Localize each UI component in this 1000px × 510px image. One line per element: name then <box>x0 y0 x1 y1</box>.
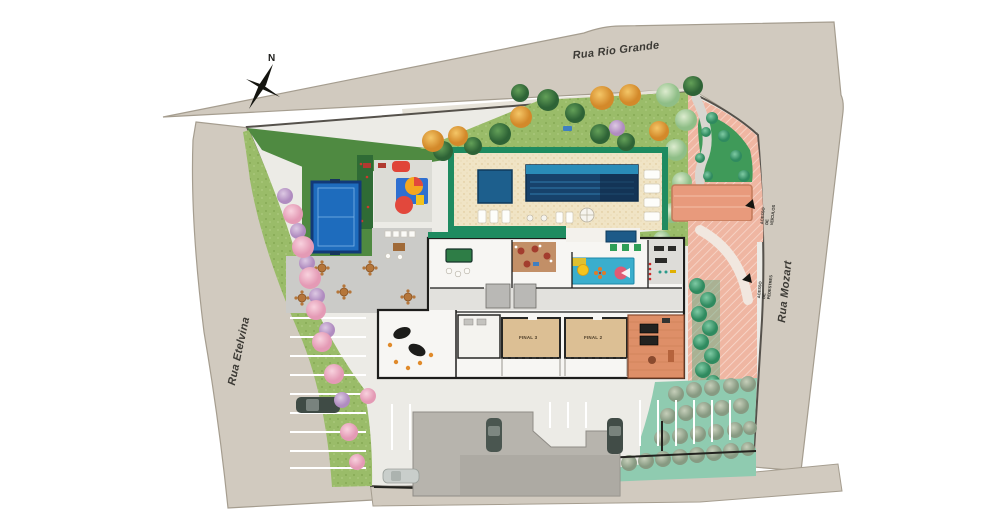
deck-trim-right <box>662 150 668 230</box>
playroom <box>572 258 634 284</box>
pedestrian-access-label: ACESSO DE PEDESTRES <box>757 276 774 299</box>
lap-pool <box>526 165 638 201</box>
unit-label-final-2: FINAL 2 <box>584 335 602 340</box>
car <box>296 397 340 413</box>
kids-pool <box>478 170 512 203</box>
fitness-corner <box>648 240 682 284</box>
bbq-deck <box>628 315 684 378</box>
reflecting-pool <box>606 231 636 242</box>
service-room <box>458 315 500 358</box>
sports-court <box>312 179 360 255</box>
elevator-core <box>486 284 510 308</box>
deck-trim-bottom <box>448 226 566 232</box>
pool-deck <box>448 147 668 232</box>
vehicle-access-label: ACESSO DE VEÍCULOS <box>760 202 777 225</box>
site-plan-drawing <box>0 0 1000 510</box>
gourmet-room <box>512 242 556 272</box>
car <box>607 418 623 454</box>
grill <box>640 324 658 333</box>
stair-core <box>514 284 536 308</box>
unit-label-final-3: FINAL 3 <box>519 335 537 340</box>
vehicle-access-arrow-icon <box>744 199 755 211</box>
hall-floor <box>430 288 682 310</box>
deck-trim-left <box>448 153 454 228</box>
north-label: N <box>268 53 275 64</box>
grill <box>640 336 658 345</box>
building-trim <box>428 232 566 238</box>
entrance-roof <box>672 185 752 221</box>
site-plan: Rua Rio Grande Rua Mozart Rua Etelvina N… <box>0 0 1000 510</box>
pedestrian-access-arrow-icon <box>741 273 752 285</box>
hedge-vertical <box>689 278 720 389</box>
car <box>383 469 419 483</box>
car <box>486 418 502 452</box>
